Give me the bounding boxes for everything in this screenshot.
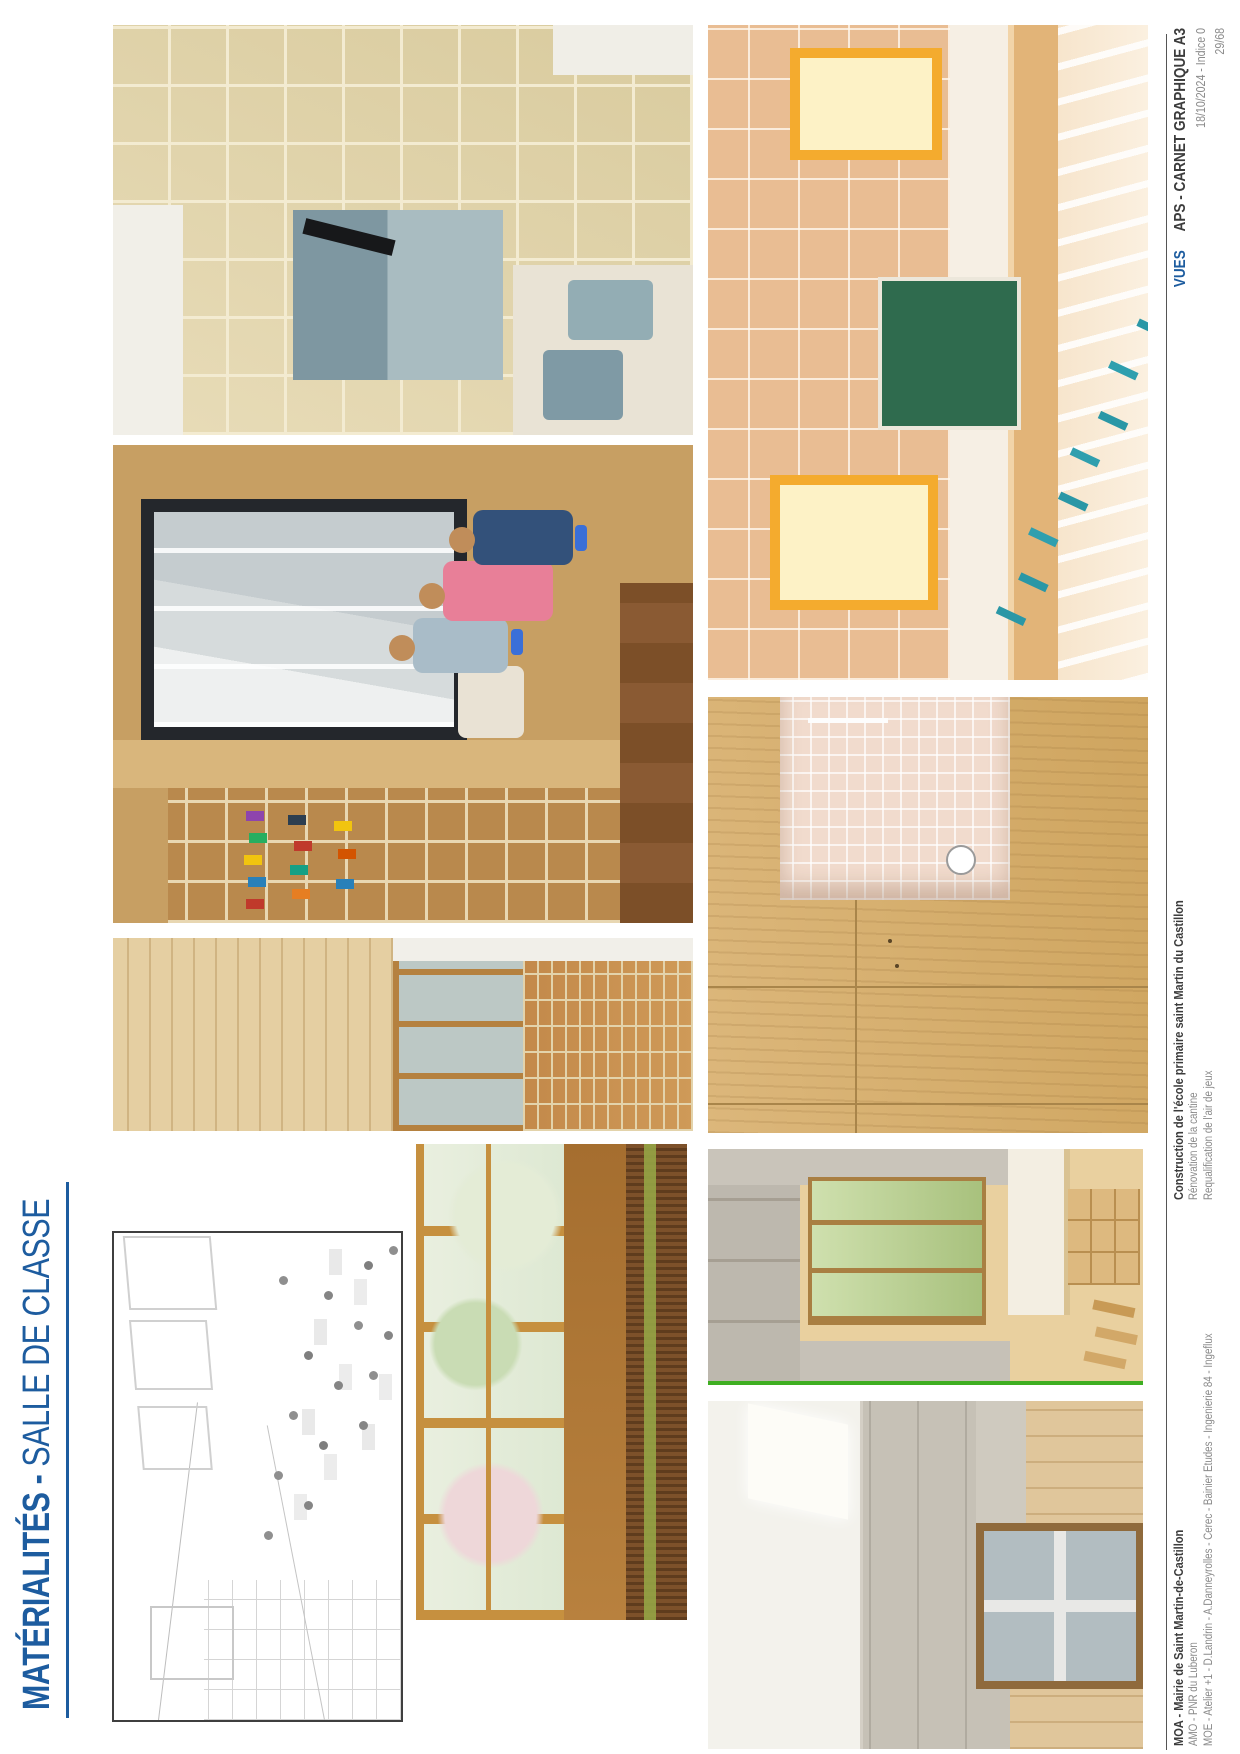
footer-doc-name: APS - CARNET GRAPHIQUE A3	[1172, 28, 1189, 232]
photo-area	[246, 899, 264, 909]
footer-vues-label: VUES	[1172, 250, 1189, 287]
photo-area	[523, 938, 693, 1131]
footer-project-line2: Rénovation de la cantine	[1187, 900, 1202, 1200]
photo-windows-cork-wall	[416, 1144, 687, 1620]
photo-area	[748, 1403, 848, 1519]
footer-project-line3: Requalification de l'air de jeux	[1202, 900, 1217, 1200]
sketch-area	[123, 1236, 217, 1310]
photo-area	[808, 718, 888, 723]
footer-meta-block: VUESAPS - CARNET GRAPHIQUE A3 18/10/2024…	[1171, 28, 1228, 333]
photo-area	[708, 986, 1148, 988]
footer-team-block: MOA - Mairie de Saint Martin-de-Castillo…	[1171, 1261, 1216, 1746]
photo-area	[393, 938, 693, 961]
photo-area	[113, 938, 393, 1131]
photo-area	[553, 25, 693, 75]
photo-area	[855, 900, 857, 1133]
photo-area	[1068, 1189, 1140, 1285]
photo-area	[168, 788, 628, 923]
photo-area	[564, 1144, 626, 1620]
footer-moa-line: MOA - Mairie de Saint Martin-de-Castillo…	[1171, 1333, 1187, 1746]
photo-area	[780, 697, 1010, 900]
footer-doc-title: VUESAPS - CARNET GRAPHIQUE A3	[1171, 28, 1190, 287]
page-title-main: MATÉRIALITÉS	[16, 1492, 58, 1710]
photo-area	[770, 475, 938, 610]
photo-area	[113, 205, 183, 435]
photo-area	[976, 1523, 1143, 1689]
photo-area	[644, 1144, 656, 1620]
sketch-area	[129, 1320, 213, 1390]
photo-shelving-lounge	[113, 25, 693, 435]
photo-area	[575, 525, 587, 551]
footer-date-indice: 18/10/2024 - Indice 0	[1193, 28, 1209, 287]
title-underline-rule	[66, 1182, 69, 1718]
photo-area	[626, 1144, 687, 1620]
photo-area	[1083, 1351, 1126, 1370]
photo-cafeteria-render	[708, 1149, 1143, 1385]
footer-rule	[1166, 34, 1167, 1750]
photo-area	[443, 561, 553, 621]
photo-area	[473, 510, 573, 565]
page-title-sub: SALLE DE CLASSE	[16, 1199, 58, 1467]
photo-timber-room	[113, 938, 693, 1131]
rotated-a3-canvas: MATÉRIALITÉS - SALLE DE CLASSE	[0, 0, 1240, 1754]
footer-project-title: Construction de l'école primaire saint M…	[1171, 900, 1187, 1200]
photo-area	[458, 666, 524, 738]
photo-area	[568, 280, 653, 340]
photo-area	[708, 1103, 1148, 1105]
footer-moe-line: MOE - Atelier +1 - D.Landrin - A.Danneyr…	[1202, 1333, 1217, 1746]
page-title-separator: -	[16, 1467, 58, 1493]
photo-area	[486, 1144, 491, 1620]
photo-area	[543, 350, 623, 420]
footer-amo-line: AMO - PNR du Luberon	[1187, 1333, 1202, 1746]
photo-plywood-alcove	[708, 697, 1148, 1133]
footer-project-block: Construction de l'école primaire saint M…	[1171, 847, 1216, 1200]
photo-children-window	[113, 445, 693, 923]
photo-area	[708, 1381, 1143, 1385]
page-title: MATÉRIALITÉS - SALLE DE CLASSE	[16, 1199, 59, 1710]
sketch-area	[150, 1606, 234, 1680]
photo-area	[1008, 1149, 1064, 1315]
photo-area	[878, 277, 1021, 430]
photo-area	[790, 48, 942, 160]
photo-area	[416, 1144, 572, 1620]
photo-classroom-cork	[708, 25, 1148, 680]
sketch-area	[264, 1531, 273, 1540]
photo-area	[511, 629, 523, 655]
footer-page-number: 29/68	[1212, 28, 1228, 287]
photo-area	[620, 583, 693, 923]
document-page: MATÉRIALITÉS - SALLE DE CLASSE	[0, 0, 1240, 1754]
photo-area	[113, 740, 693, 788]
photo-area	[413, 618, 508, 673]
photo-area	[393, 938, 535, 1131]
photo-area	[888, 939, 892, 943]
photo-area	[800, 1341, 1010, 1381]
photo-area	[946, 845, 976, 875]
sketch-area	[137, 1406, 213, 1470]
photo-area	[895, 964, 899, 968]
photo-area	[808, 1177, 986, 1325]
photo-concrete-room	[708, 1401, 1143, 1749]
sketch-classroom-perspective	[112, 1231, 403, 1722]
sketch-area	[294, 1494, 307, 1520]
